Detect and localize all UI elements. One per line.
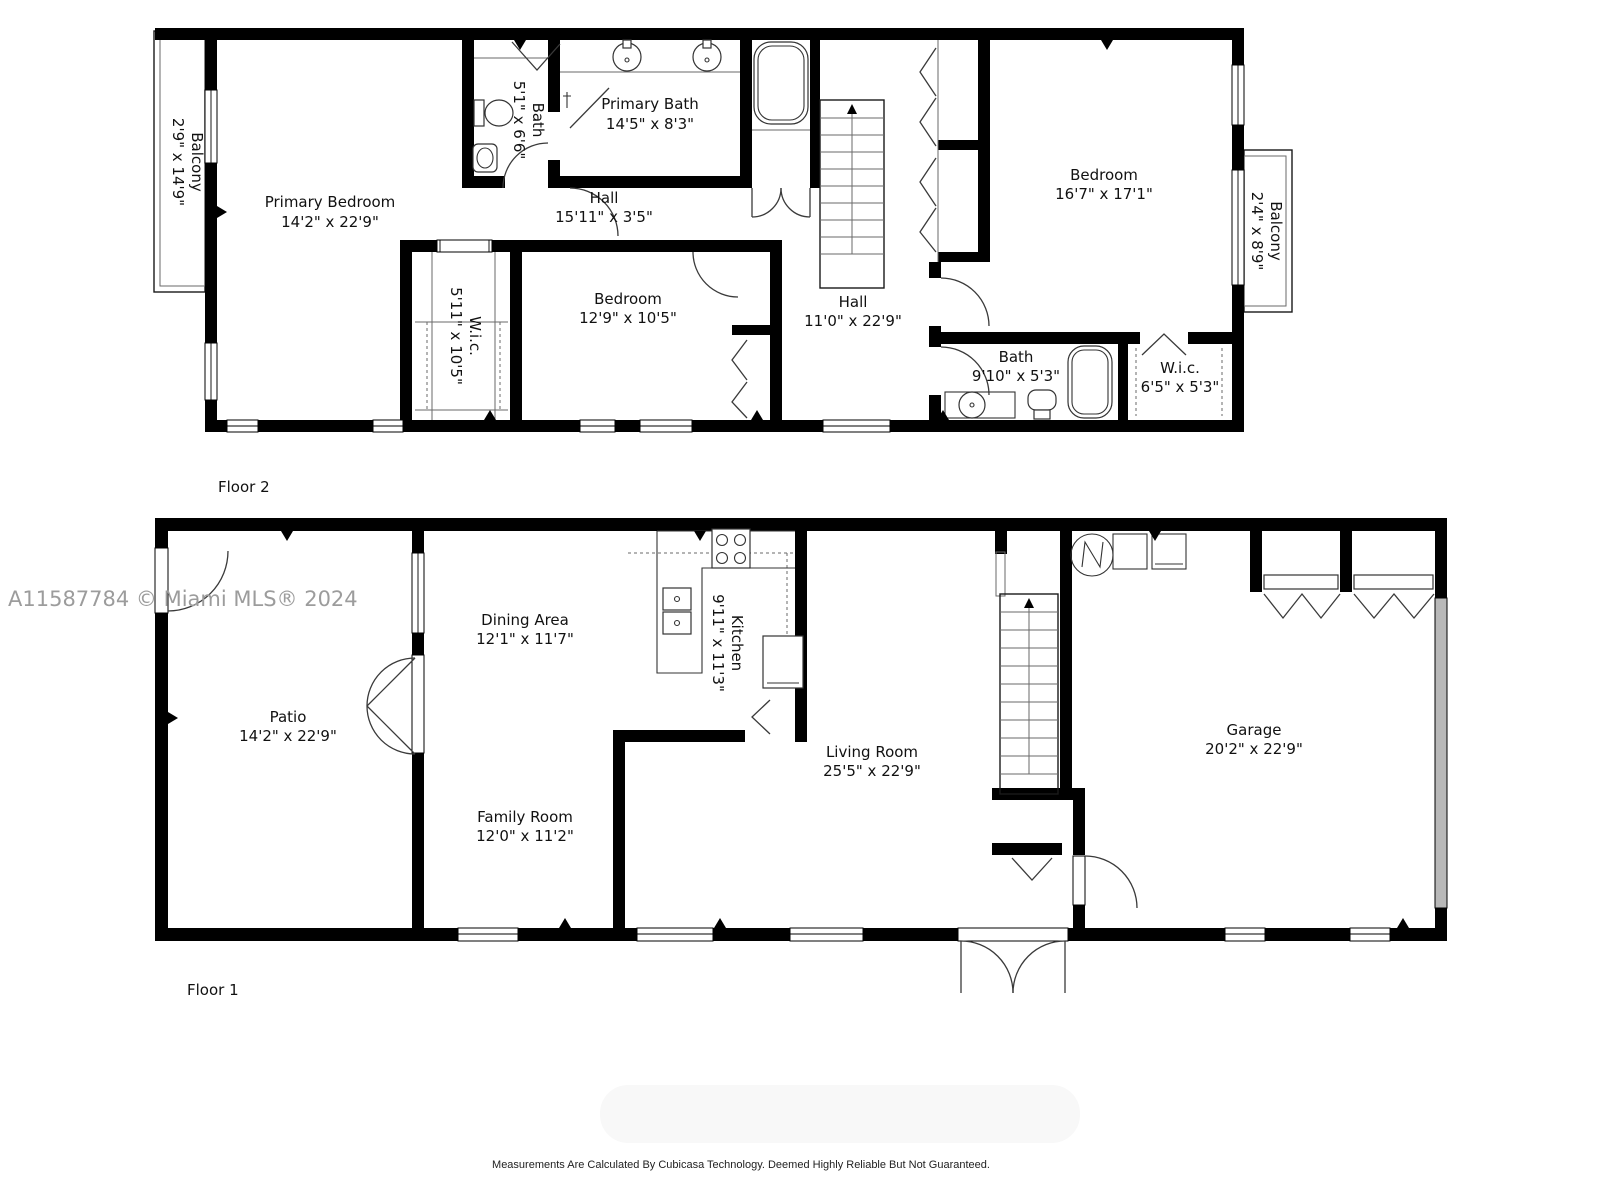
room-label-kitchen: Kitchen 9'11" x 11'3" (709, 594, 746, 692)
svg-text:5'11" x 10'5": 5'11" x 10'5" (447, 287, 465, 385)
svg-text:2'4" x 8'9": 2'4" x 8'9" (1248, 192, 1266, 271)
svg-text:25'5" x 22'9": 25'5" x 22'9" (823, 762, 921, 780)
room-label-bedroom-right: Bedroom 16'7" x 17'1" (1055, 166, 1153, 203)
svg-text:Primary Bath: Primary Bath (601, 95, 699, 113)
toilet-icon (474, 100, 484, 126)
svg-text:Bedroom: Bedroom (594, 290, 662, 308)
room-label-patio: Patio 14'2" x 22'9" (239, 708, 337, 745)
kitchen-sink-icon (663, 588, 691, 610)
floorplan-page: Balcony 2'9" x 14'9" Primary Bedroom 14'… (0, 0, 1600, 1200)
floor2-hall-closets (920, 40, 938, 262)
svg-text:12'1" x 11'7": 12'1" x 11'7" (476, 630, 574, 648)
floor1-room-labels: Patio 14'2" x 22'9" Dining Area 12'1" x … (239, 594, 1303, 845)
shower-icon (563, 92, 571, 108)
floor1-interior-walls (412, 518, 1352, 941)
washer-icon (1113, 534, 1147, 569)
room-label-family: Family Room 12'0" x 11'2" (476, 808, 574, 845)
svg-text:Kitchen: Kitchen (728, 615, 746, 671)
garage-side-window (1435, 598, 1447, 908)
svg-text:14'2" x 22'9": 14'2" x 22'9" (281, 213, 379, 231)
room-label-dining: Dining Area 12'1" x 11'7" (476, 611, 574, 648)
svg-text:Living Room: Living Room (826, 743, 918, 761)
room-label-hall-mid: Hall 11'0" x 22'9" (804, 293, 902, 330)
room-label-bath: Bath 5'1" x 6'6" (510, 81, 547, 160)
svg-text:2'9" x 14'9": 2'9" x 14'9" (169, 118, 187, 206)
svg-text:Bedroom: Bedroom (1070, 166, 1138, 184)
floor1-doors (168, 551, 1137, 993)
sink-icon (959, 392, 985, 418)
svg-text:Garage: Garage (1227, 721, 1282, 739)
svg-text:9'10" x 5'3": 9'10" x 5'3" (972, 367, 1060, 385)
svg-text:Primary Bedroom: Primary Bedroom (265, 193, 396, 211)
svg-text:11'0" x 22'9": 11'0" x 22'9" (804, 312, 902, 330)
floor2-label: Floor 2 (218, 478, 270, 496)
understair-closet-door (1012, 858, 1052, 880)
room-label-bath-right: Bath 9'10" x 5'3" (972, 348, 1060, 385)
svg-text:Hall: Hall (839, 293, 868, 311)
room-label-hall-top: Hall 15'11" x 3'5" (555, 189, 653, 226)
mls-watermark: A11587784 © Miami MLS® 2024 (8, 587, 358, 611)
floor2-stairs (820, 100, 884, 288)
floor1-stairs (996, 552, 1058, 794)
svg-text:Balcony: Balcony (1267, 201, 1285, 261)
stairs-up-arrow-icon (1024, 598, 1034, 608)
footer-disclaimer: Measurements Are Calculated By Cubicasa … (492, 1159, 990, 1171)
svg-text:Bath: Bath (999, 348, 1034, 366)
svg-text:14'2" x 22'9": 14'2" x 22'9" (239, 727, 337, 745)
svg-text:Dining Area: Dining Area (481, 611, 569, 629)
svg-text:Balcony: Balcony (188, 132, 206, 192)
room-label-balcony-left: Balcony 2'9" x 14'9" (169, 118, 206, 206)
svg-text:20'2" x 22'9": 20'2" x 22'9" (1205, 740, 1303, 758)
svg-text:16'7" x 17'1": 16'7" x 17'1" (1055, 185, 1153, 203)
floor1-label: Floor 1 (187, 981, 239, 999)
room-label-living: Living Room 25'5" x 22'9" (823, 743, 921, 780)
bathtub-icon (1068, 346, 1112, 418)
svg-text:Family Room: Family Room (477, 808, 573, 826)
floorplan-drawing: Balcony 2'9" x 14'9" Primary Bedroom 14'… (0, 0, 1600, 1200)
garage-bay-door (1354, 575, 1433, 589)
svg-text:W.i.c.: W.i.c. (1160, 359, 1200, 377)
svg-text:14'5" x 8'3": 14'5" x 8'3" (606, 115, 694, 133)
room-label-primary-bedroom: Primary Bedroom 14'2" x 22'9" (265, 193, 396, 231)
room-label-primary-bath: Primary Bath 14'5" x 8'3" (601, 95, 699, 133)
room-label-bedroom-mid: Bedroom 12'9" x 10'5" (579, 290, 677, 327)
floor2-room-labels: Balcony 2'9" x 14'9" Primary Bedroom 14'… (169, 81, 1285, 396)
garage-bay-door (1264, 575, 1338, 589)
room-label-balcony-right: Balcony 2'4" x 8'9" (1248, 192, 1285, 271)
svg-text:12'0" x 11'2": 12'0" x 11'2" (476, 827, 574, 845)
svg-text:Bath: Bath (529, 103, 547, 138)
room-label-wic-left: W.i.c. 5'11" x 10'5" (447, 287, 484, 385)
room-label-wic-right: W.i.c. 6'5" x 5'3" (1141, 359, 1220, 396)
pantry-door (752, 700, 770, 734)
svg-text:Patio: Patio (270, 708, 307, 726)
svg-text:5'1" x 6'6": 5'1" x 6'6" (510, 81, 528, 160)
floor2-bedroom-closet (732, 340, 747, 418)
faded-logo-watermark (600, 1085, 1080, 1143)
svg-text:12'9" x 10'5": 12'9" x 10'5" (579, 309, 677, 327)
svg-text:15'11" x 3'5": 15'11" x 3'5" (555, 208, 653, 226)
svg-text:9'11" x 11'3": 9'11" x 11'3" (709, 594, 727, 692)
water-heater-icon (1071, 534, 1113, 576)
stairs-up-arrow-icon (847, 104, 857, 114)
svg-text:6'5" x 5'3": 6'5" x 5'3" (1141, 378, 1220, 396)
svg-text:W.i.c.: W.i.c. (466, 316, 484, 356)
bathtub-icon (754, 42, 808, 124)
room-label-garage: Garage 20'2" x 22'9" (1205, 721, 1303, 758)
svg-text:Hall: Hall (590, 189, 619, 207)
toilet-icon (1028, 390, 1056, 410)
fridge-icon (763, 636, 803, 688)
